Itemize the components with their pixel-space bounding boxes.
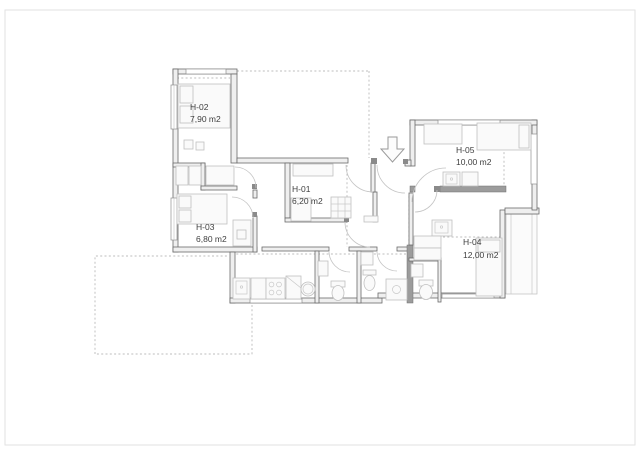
washing-machine-icon bbox=[301, 282, 315, 296]
toilet-icon bbox=[363, 270, 376, 291]
desk-icon bbox=[424, 124, 462, 144]
terrace-outline bbox=[95, 256, 228, 354]
shelf-icon bbox=[364, 216, 378, 222]
toilet-icon bbox=[419, 280, 433, 300]
counter-wall bbox=[440, 186, 506, 192]
nightstand-icon bbox=[184, 140, 193, 149]
nightstand-icon bbox=[196, 142, 204, 150]
room-area: 6,20 m2 bbox=[292, 196, 323, 206]
terrace-outline bbox=[95, 305, 252, 354]
shelving-unit-icon bbox=[331, 197, 351, 218]
wall bbox=[438, 258, 441, 302]
pillow-icon bbox=[180, 86, 193, 103]
door-arc bbox=[346, 165, 373, 192]
sink-icon bbox=[432, 220, 452, 236]
room-label-h03: H-03 6,80 m2 bbox=[196, 222, 227, 244]
wardrobe-icon bbox=[206, 166, 234, 185]
wardrobe-icon bbox=[414, 248, 441, 260]
floorplan-svg: H-01 6,20 m2 H-02 7,90 m2 H-03 6,80 m2 H… bbox=[0, 0, 640, 452]
wall bbox=[231, 74, 237, 163]
room-area: 10,00 m2 bbox=[456, 157, 492, 167]
stove-icon bbox=[266, 278, 285, 299]
wall bbox=[201, 186, 237, 190]
room-id: H-02 bbox=[190, 102, 209, 112]
door-arc bbox=[377, 165, 405, 193]
wall bbox=[253, 190, 257, 198]
wall bbox=[285, 163, 290, 218]
cabinet-icon bbox=[462, 172, 478, 186]
wall bbox=[262, 247, 329, 251]
door-jamb bbox=[371, 158, 377, 164]
door-arc bbox=[412, 168, 446, 202]
fridge-icon bbox=[286, 276, 301, 299]
toilet-icon bbox=[331, 281, 345, 301]
wall bbox=[237, 158, 348, 163]
sink-icon bbox=[411, 264, 423, 277]
wall bbox=[315, 251, 319, 303]
door-arc bbox=[345, 222, 370, 247]
room-area: 7,90 m2 bbox=[190, 114, 221, 124]
counter-icon bbox=[251, 278, 266, 299]
window bbox=[250, 299, 302, 303]
floor-plan-page: H-01 6,20 m2 H-02 7,90 m2 H-03 6,80 m2 H… bbox=[0, 0, 640, 452]
wardrobe-icon bbox=[414, 236, 441, 248]
shower-icon bbox=[386, 279, 407, 300]
sink-icon bbox=[361, 252, 373, 265]
pillow-icon bbox=[519, 125, 529, 148]
balcony bbox=[506, 214, 537, 294]
room-id: H-04 bbox=[463, 237, 482, 247]
door-jamb bbox=[403, 159, 408, 164]
door-leaf bbox=[371, 163, 375, 192]
room-area: 12,00 m2 bbox=[463, 250, 499, 260]
kitchen-sink-icon bbox=[233, 278, 250, 299]
sink-icon bbox=[443, 172, 460, 186]
wall bbox=[410, 120, 415, 166]
room-id: H-05 bbox=[456, 145, 475, 155]
sink-icon bbox=[318, 261, 328, 276]
wall bbox=[173, 247, 257, 252]
room-id: H-03 bbox=[196, 222, 215, 232]
wall bbox=[349, 247, 377, 251]
chair-icon bbox=[237, 230, 246, 239]
entrance-arrow-icon bbox=[381, 137, 404, 162]
pillow-icon bbox=[179, 210, 191, 222]
room-id: H-01 bbox=[292, 184, 311, 194]
room-area: 6,80 m2 bbox=[196, 234, 227, 244]
shelf-icon bbox=[293, 164, 333, 176]
pillow-icon bbox=[179, 196, 191, 208]
window bbox=[186, 69, 226, 74]
wall bbox=[357, 251, 361, 303]
wardrobe-icon bbox=[189, 166, 201, 185]
door-arc bbox=[232, 197, 253, 218]
room-label-h01: H-01 6,20 m2 bbox=[292, 184, 323, 206]
door-arc bbox=[415, 190, 437, 212]
wall bbox=[253, 216, 257, 252]
page-border bbox=[5, 10, 635, 445]
window bbox=[531, 134, 537, 184]
wardrobe-icon bbox=[176, 166, 188, 185]
